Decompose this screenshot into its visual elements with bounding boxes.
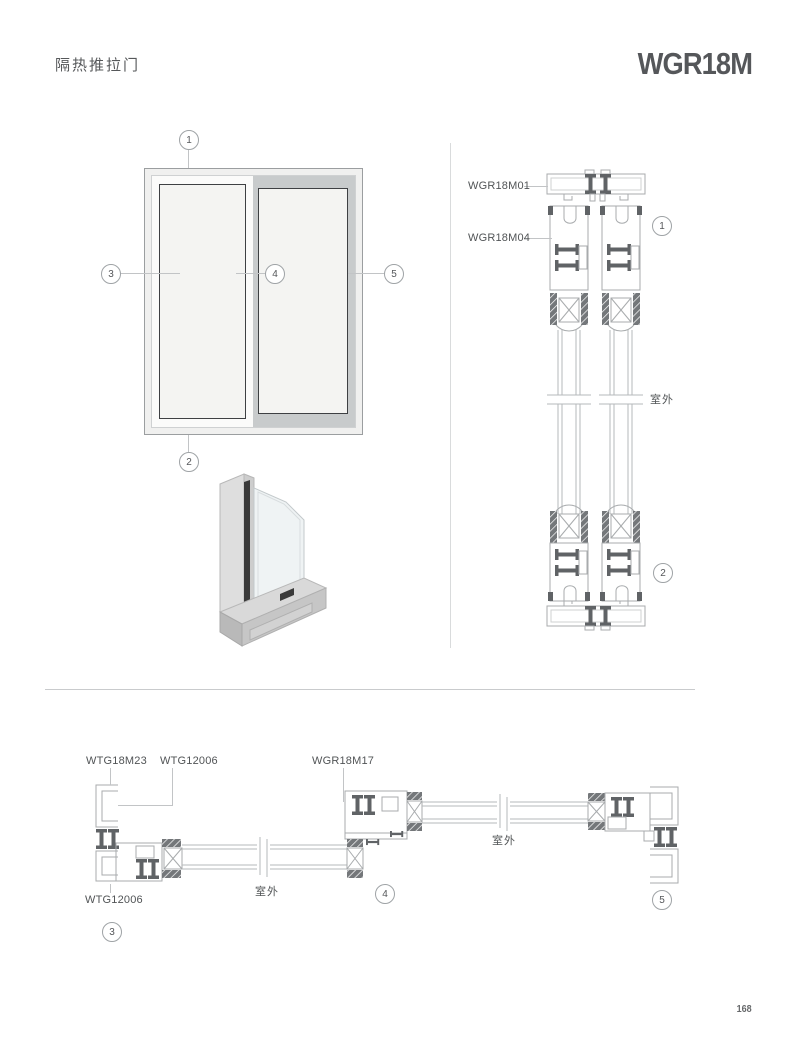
part-label-wtg12006-top: WTG12006	[160, 755, 218, 767]
part-label-wgr18m17: WGR18M17	[312, 755, 374, 767]
callout-1-section: 1	[652, 216, 672, 236]
callout-3-section: 3	[102, 922, 122, 942]
leader-line	[118, 805, 173, 806]
horizontal-divider	[45, 689, 695, 690]
callout-5-section: 5	[652, 890, 672, 910]
leader-line	[110, 884, 111, 893]
page-title: 隔热推拉门	[55, 54, 140, 75]
catalog-page: 隔热推拉门 WGR18M 1 2 3 4 5	[0, 0, 800, 1042]
outdoor-label-right: 室外	[492, 832, 516, 848]
leader-line	[236, 273, 265, 274]
callout-3: 3	[101, 264, 121, 284]
corner-3d-illustration	[192, 462, 337, 662]
model-code-title: WGR18M	[638, 46, 752, 82]
leader-line	[348, 273, 384, 274]
callout-5: 5	[384, 264, 404, 284]
elevation-glass-panel-left	[159, 184, 246, 419]
page-number: 168	[737, 1004, 752, 1015]
horizontal-section-drawing	[60, 755, 720, 930]
leader-line	[120, 273, 180, 274]
leader-line	[188, 435, 189, 452]
callout-2: 2	[179, 452, 199, 472]
part-label-wtg18m23: WTG18M23	[86, 755, 147, 767]
part-label-wgr18m04: WGR18M04	[468, 232, 530, 244]
leader-line	[188, 149, 189, 168]
part-label-wtg12006-bottom: WTG12006	[85, 894, 143, 906]
leader-line	[172, 768, 173, 805]
callout-1: 1	[179, 130, 199, 150]
elevation-drawing	[144, 168, 363, 435]
outdoor-label: 室外	[650, 391, 674, 407]
outdoor-label-left: 室外	[255, 883, 279, 899]
callout-4-section: 4	[375, 884, 395, 904]
leader-line	[343, 768, 344, 802]
vertical-divider	[450, 143, 451, 648]
callout-2-section: 2	[653, 563, 673, 583]
callout-4: 4	[265, 264, 285, 284]
elevation-glass-panel-right	[258, 188, 348, 414]
part-label-wgr18m01: WGR18M01	[468, 180, 530, 192]
leader-line	[110, 768, 111, 785]
